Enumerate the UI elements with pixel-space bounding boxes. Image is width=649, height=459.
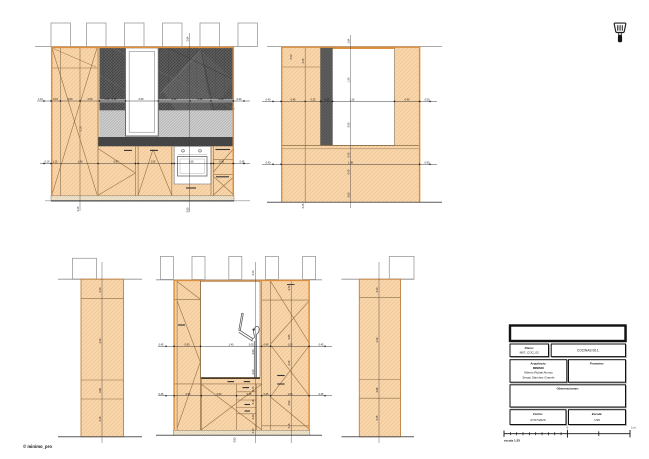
svg-text:Promotor:: Promotor:	[590, 362, 605, 366]
svg-text:1 m: 1 m	[631, 426, 636, 430]
svg-text:0.40: 0.40	[252, 270, 255, 275]
svg-text:0.15: 0.15	[112, 98, 117, 101]
svg-text:0.15: 0.15	[252, 386, 255, 391]
svg-text:0.40: 0.40	[266, 99, 271, 102]
svg-text:0.40: 0.40	[219, 98, 224, 101]
svg-text:Fecha:: Fecha:	[533, 412, 543, 416]
svg-text:0.60: 0.60	[233, 437, 236, 442]
svg-text:3.05: 3.05	[249, 344, 254, 347]
svg-text:0.87: 0.87	[114, 161, 119, 164]
svg-text:Alberto Rubial Alonso: Alberto Rubial Alonso	[524, 371, 553, 375]
svg-text:0.90: 0.90	[252, 349, 255, 354]
svg-text:0.45: 0.45	[302, 203, 305, 208]
svg-text:0.45: 0.45	[219, 161, 224, 164]
svg-text:Arquitecto:: Arquitecto:	[529, 362, 546, 366]
svg-text:0.45: 0.45	[99, 416, 102, 421]
svg-text:1.40: 1.40	[347, 77, 350, 82]
svg-text:1.10: 1.10	[38, 98, 43, 101]
svg-text:0.20: 0.20	[252, 369, 255, 374]
svg-text:0.40: 0.40	[237, 98, 242, 101]
svg-text:0.45: 0.45	[159, 393, 164, 396]
svg-text:0.60: 0.60	[347, 192, 350, 197]
svg-text:1.98: 1.98	[348, 162, 353, 165]
svg-text:0.60: 0.60	[88, 98, 93, 101]
svg-text:0.50: 0.50	[425, 162, 430, 165]
svg-text:0.45: 0.45	[319, 344, 324, 347]
svg-text:0.40: 0.40	[376, 287, 379, 292]
svg-text:0.90: 0.90	[347, 122, 350, 127]
svg-text:1.15: 1.15	[53, 161, 58, 164]
svg-text:0.15: 0.15	[288, 423, 291, 428]
svg-text:0.90: 0.90	[185, 344, 190, 347]
svg-text:0.58: 0.58	[99, 388, 102, 393]
svg-text:0.10: 0.10	[252, 428, 255, 433]
svg-text:0.15: 0.15	[53, 98, 58, 101]
svg-text:0.15: 0.15	[45, 161, 50, 164]
svg-text:1.05: 1.05	[189, 161, 194, 164]
svg-text:2.64: 2.64	[347, 38, 350, 43]
svg-text:Observaciones:: Observaciones:	[556, 387, 579, 391]
svg-text:1.40: 1.40	[229, 344, 234, 347]
svg-text:1.40: 1.40	[78, 161, 83, 164]
svg-text:0.45: 0.45	[247, 393, 252, 396]
svg-text:Plano:: Plano:	[525, 346, 534, 350]
svg-text:COCINAS 06.1.: COCINAS 06.1.	[577, 349, 600, 353]
svg-text:0.40: 0.40	[266, 162, 271, 165]
svg-text:escala 1:25: escala 1:25	[504, 439, 520, 443]
svg-text:2.20: 2.20	[376, 337, 379, 342]
svg-text:1.05: 1.05	[288, 344, 293, 347]
svg-text:0.45: 0.45	[302, 58, 305, 63]
svg-text:0.45: 0.45	[347, 152, 350, 157]
svg-text:0.50: 0.50	[425, 99, 430, 102]
svg-text:0.40: 0.40	[405, 99, 410, 102]
svg-text:0.60: 0.60	[187, 207, 190, 212]
svg-text:0.30: 0.30	[105, 98, 110, 101]
svg-text:0.45: 0.45	[264, 344, 269, 347]
svg-text:0.45: 0.45	[319, 393, 324, 396]
svg-text:MINIMO: MINIMO	[533, 366, 545, 370]
svg-text:0.60: 0.60	[139, 98, 144, 101]
svg-text:0.45: 0.45	[288, 360, 291, 365]
svg-text:0.18: 0.18	[252, 399, 255, 404]
svg-text:0.60: 0.60	[68, 98, 73, 101]
svg-text:2.10: 2.10	[80, 126, 83, 131]
svg-text:Escala:: Escala:	[592, 412, 603, 416]
svg-text:0.58: 0.58	[376, 387, 379, 392]
svg-text:1/25: 1/25	[594, 418, 600, 422]
svg-text:2.20: 2.20	[99, 338, 102, 343]
svg-text:0.25: 0.25	[311, 99, 316, 102]
svg-text:07/07/2020: 07/07/2020	[530, 418, 545, 422]
svg-text:0.60: 0.60	[172, 98, 177, 101]
svg-text:0.40: 0.40	[347, 169, 350, 174]
svg-text:0.60: 0.60	[288, 400, 291, 405]
svg-text:1.05: 1.05	[151, 161, 156, 164]
svg-text:0.45: 0.45	[376, 415, 379, 420]
svg-text:© minimo_pro: © minimo_pro	[23, 444, 52, 449]
svg-text:0.40: 0.40	[198, 98, 203, 101]
svg-text:0.94: 0.94	[186, 393, 191, 396]
svg-text:0.45: 0.45	[77, 206, 80, 211]
svg-text:1.05: 1.05	[288, 393, 293, 396]
svg-text:Sergio Sánchez Grande: Sergio Sánchez Grande	[522, 375, 554, 379]
svg-text:0.60: 0.60	[217, 393, 222, 396]
svg-text:0.45: 0.45	[159, 344, 164, 347]
svg-text:0.40: 0.40	[290, 54, 293, 59]
svg-text:0.45: 0.45	[264, 393, 269, 396]
svg-text:0.25: 0.25	[325, 99, 330, 102]
svg-text:0.40: 0.40	[99, 287, 102, 292]
svg-text:0.40: 0.40	[288, 285, 291, 290]
svg-text:0.30: 0.30	[252, 414, 255, 419]
svg-text:0.90: 0.90	[288, 334, 291, 339]
svg-text:0.45: 0.45	[240, 161, 245, 164]
svg-text:2.64: 2.64	[187, 36, 190, 41]
svg-text:0.45: 0.45	[291, 99, 296, 102]
svg-text:M07_COC_02: M07_COC_02	[520, 351, 540, 355]
